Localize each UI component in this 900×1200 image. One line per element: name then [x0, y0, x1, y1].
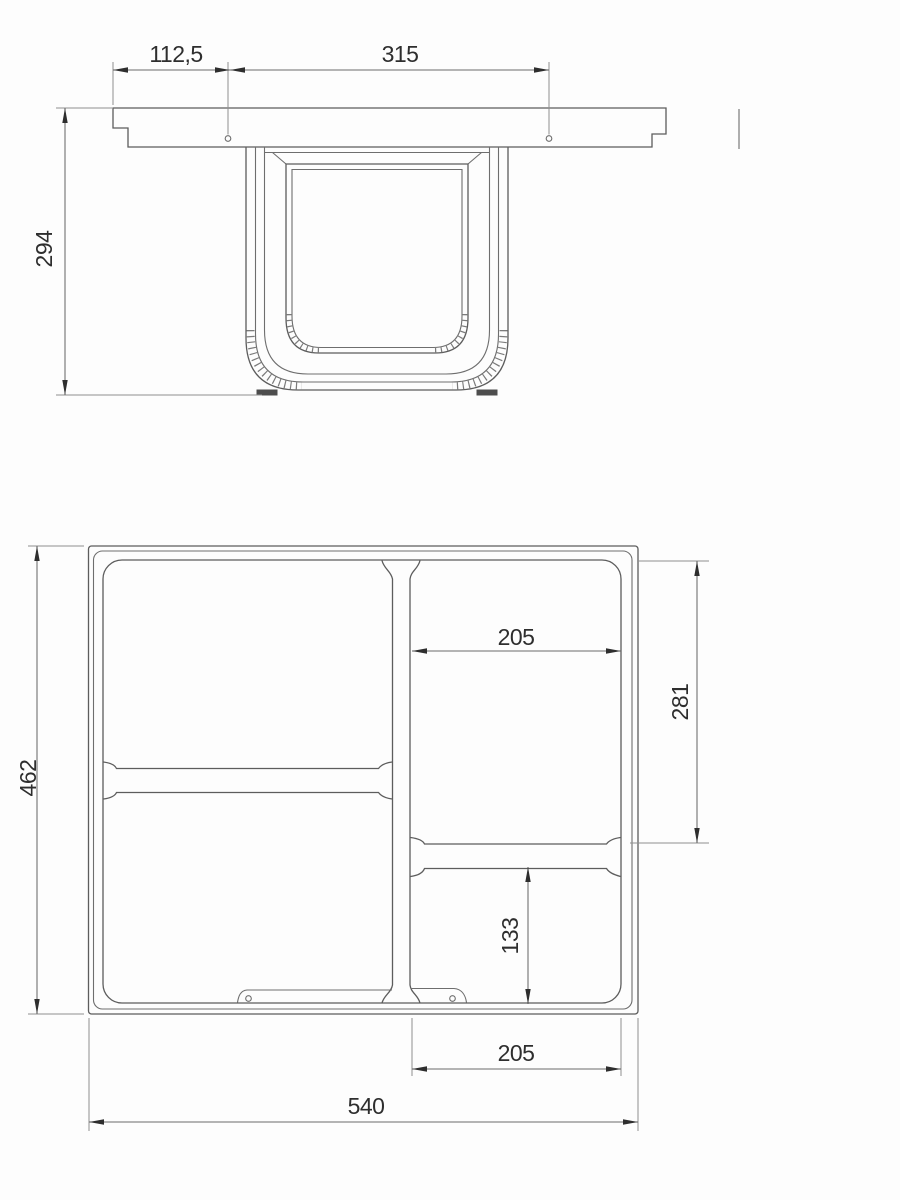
arrowhead — [525, 989, 530, 1004]
divider-top-edge — [104, 762, 393, 769]
arrowhead — [34, 546, 39, 561]
divider-top-edge — [411, 838, 621, 845]
dim-label-281: 281 — [667, 684, 693, 721]
divider-left-edge — [382, 561, 393, 1004]
dimension-frame-height: 294 — [31, 108, 262, 395]
dimension-overall-depth: 462 — [15, 546, 84, 1014]
plate-edge — [238, 990, 393, 1003]
arrowhead — [694, 828, 699, 843]
plan-outer-edge — [89, 546, 639, 1014]
bend-hatching-left-outer — [251, 330, 303, 386]
plan-inner-panel-edge — [103, 560, 621, 1003]
arrowhead — [525, 867, 530, 882]
arrowhead — [62, 380, 67, 395]
front-elevation-view: 112,5 315 294 — [31, 41, 739, 396]
dimension-right-bay-width-bottom: 205 — [412, 1018, 621, 1076]
divider-right-edge — [410, 561, 420, 1004]
screw-hole-left — [225, 136, 231, 142]
arrowhead — [606, 1066, 621, 1071]
arrowhead — [694, 561, 699, 576]
dimension-hole-spacing: 315 — [230, 41, 549, 73]
leg-foot-right — [477, 390, 498, 396]
plan-view: 462 205 281 133 — [15, 546, 709, 1131]
arrowhead — [113, 67, 128, 72]
leg-inner-panel — [286, 164, 468, 353]
leg-inner-panel-line — [292, 170, 462, 348]
arrowhead — [534, 67, 549, 72]
leg-inner-contour — [265, 147, 490, 374]
leg-bevel-right — [468, 153, 482, 165]
arrowhead — [606, 648, 621, 653]
arrowhead — [412, 648, 427, 653]
dim-label-112-5: 112,5 — [149, 41, 202, 67]
arrowhead — [34, 999, 39, 1014]
screw-hole-right — [546, 136, 552, 142]
leg-bevel-left — [273, 153, 287, 165]
arrowhead — [89, 1119, 104, 1124]
dim-label-462: 462 — [15, 760, 41, 797]
dimension-right-bay-width-top: 205 — [412, 624, 621, 654]
bend-hatching-right-outer — [452, 330, 504, 386]
dimension-hole-edge-offset: 112,5 — [113, 41, 230, 105]
plate-screw-hole — [246, 996, 252, 1002]
horizontal-divider-left-bay — [104, 762, 393, 799]
dimension-overall-width: 540 — [89, 1018, 638, 1131]
dimension-lower-bay-depth: 133 — [497, 867, 531, 1004]
divider-bottom-edge — [104, 793, 393, 800]
tabletop-profile — [113, 108, 666, 147]
arrowhead — [62, 108, 67, 123]
arrowhead — [230, 67, 245, 72]
dim-label-294: 294 — [31, 230, 57, 268]
dim-label-205-bottom: 205 — [498, 1040, 535, 1066]
dim-label-205-top: 205 — [498, 624, 535, 650]
leg-frame — [246, 147, 508, 396]
technical-drawing-canvas: 112,5 315 294 — [0, 0, 900, 1200]
arrowhead — [623, 1119, 638, 1124]
plan-offset-edge — [94, 551, 633, 1009]
dim-label-540: 540 — [348, 1093, 385, 1119]
horizontal-divider-right-bay — [411, 838, 621, 877]
dim-label-315: 315 — [382, 41, 419, 67]
table-frame-technical-drawing: 112,5 315 294 — [0, 0, 900, 1200]
plate-screw-hole — [450, 996, 456, 1002]
divider-bottom-edge — [411, 869, 621, 877]
mounting-plate-left — [238, 990, 393, 1003]
vertical-divider-rib — [382, 561, 420, 1004]
arrowhead — [412, 1066, 427, 1071]
dim-label-133: 133 — [497, 918, 523, 955]
dimension-right-bay-depth: 281 — [630, 561, 709, 843]
